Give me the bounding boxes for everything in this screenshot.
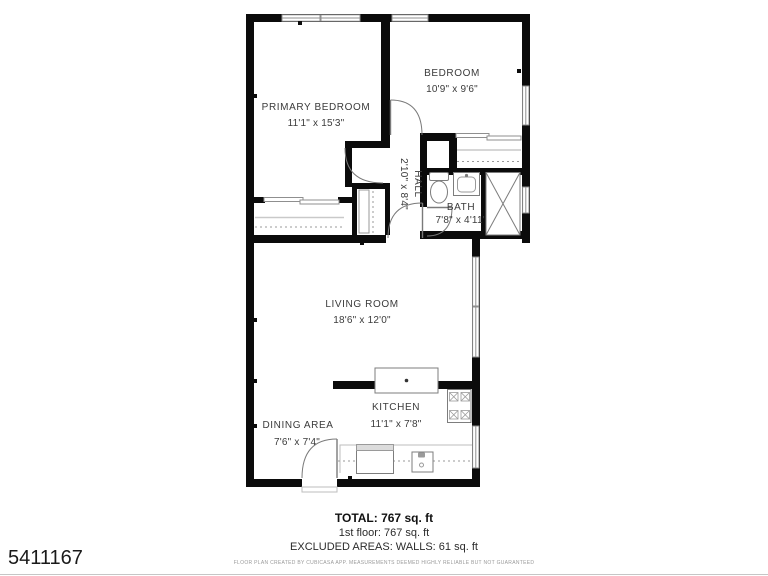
sliding-door <box>300 200 339 204</box>
total-area-text: TOTAL: 767 sq. ft <box>0 511 768 525</box>
room-label-bath: BATH <box>447 202 475 213</box>
entry-threshold <box>302 487 337 492</box>
floor-plan-page: PRIMARY BEDROOM 11'1" x 15'3" BEDROOM 10… <box>0 0 768 576</box>
room-dims-primary-bedroom: 11'1" x 15'3" <box>288 118 345 129</box>
room-dims-dining-area: 7'6" x 7'4" <box>274 437 320 448</box>
disclaimer-text: FLOOR PLAN CREATED BY CUBICASA APP. MEAS… <box>0 560 768 566</box>
toilet-symbol <box>431 181 448 203</box>
doors <box>302 100 452 492</box>
room-label-kitchen: KITCHEN <box>372 402 420 413</box>
room-label-hall: HALL <box>412 170 423 197</box>
wall-living-top <box>246 235 386 243</box>
wall-left <box>246 14 254 487</box>
wall-bottom <box>246 479 480 487</box>
sliding-door <box>264 198 303 202</box>
room-dims-hall: 2'10" x 8'4" <box>398 158 409 210</box>
area-summary: TOTAL: 767 sq. ft 1st floor: 767 sq. ft … <box>0 511 768 566</box>
first-floor-area-text: 1st floor: 767 sq. ft <box>0 527 768 539</box>
walls <box>246 14 530 487</box>
room-dims-living-room: 18'6" x 12'0" <box>333 315 391 326</box>
sliding-door <box>456 134 489 138</box>
wall-pb-closet-stub-right <box>338 197 352 203</box>
sliding-door <box>487 136 521 140</box>
door-arc-bedroom <box>391 100 423 135</box>
room-label-dining-area: DINING AREA <box>262 420 333 431</box>
room-label-living-room: LIVING ROOM <box>325 299 398 310</box>
photo-id: 5411167 <box>8 547 83 570</box>
wall-door-stub <box>345 141 352 187</box>
wall-hall-top <box>352 141 390 148</box>
closet-panel <box>359 190 369 233</box>
room-label-primary-bedroom: PRIMARY BEDROOM <box>262 102 371 113</box>
wall-closet-left <box>352 183 357 235</box>
room-label-bedroom: BEDROOM <box>424 68 480 79</box>
bottom-border-line <box>0 574 768 575</box>
room-dims-kitchen: 11'1" x 7'8" <box>371 419 422 430</box>
room-dims-bath: 7'8" x 4'11" <box>436 215 487 226</box>
room-dims-bedroom: 10'9" x 9'6" <box>426 84 478 95</box>
floor-plan-drawing: PRIMARY BEDROOM 11'1" x 15'3" BEDROOM 10… <box>0 0 768 576</box>
toilet-symbol <box>430 173 449 181</box>
wall-closet-top <box>352 183 390 189</box>
excluded-area-text: EXCLUDED AREAS: WALLS: 61 sq. ft <box>0 541 768 553</box>
wall-bedroom-divider <box>381 14 390 147</box>
wall-pb-closet-stub-left <box>246 197 265 203</box>
